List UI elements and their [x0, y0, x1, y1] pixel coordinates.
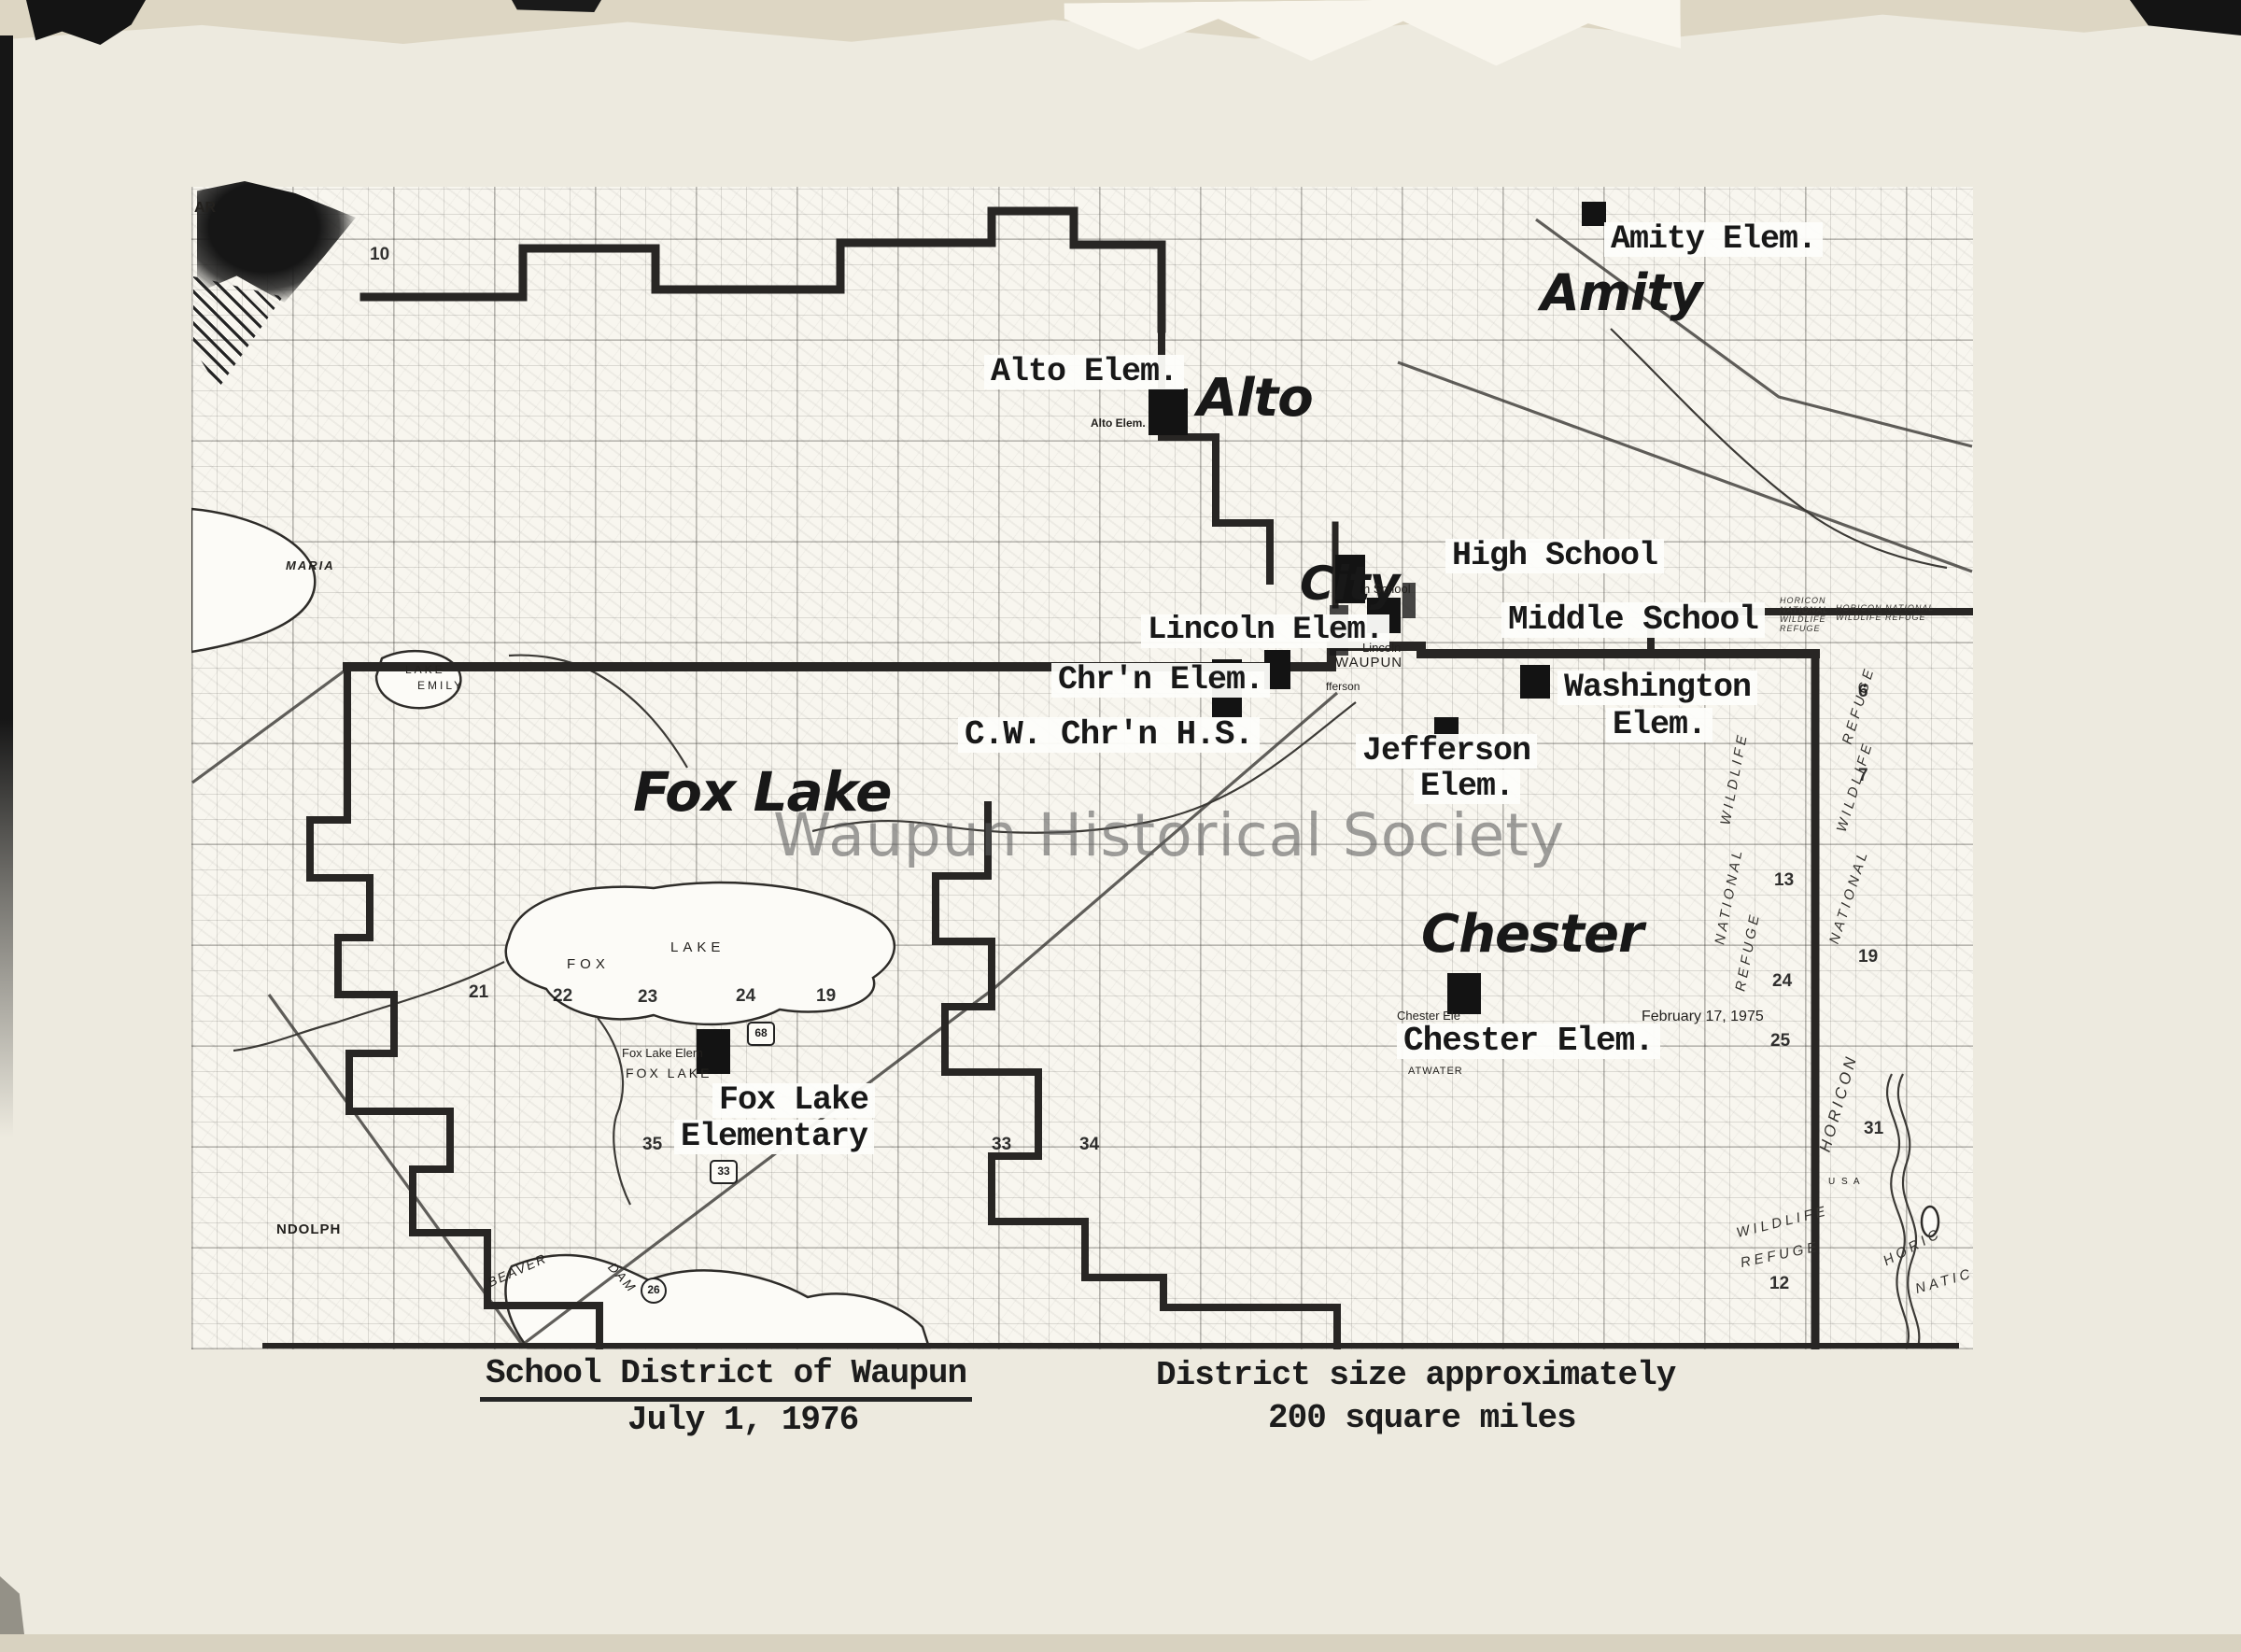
label-middle-school: Middle School — [1501, 602, 1765, 638]
map-text-atwater: ATWATER — [1408, 1066, 1463, 1077]
beaver-dam-lake — [506, 1255, 929, 1348]
section-number: 35 — [642, 1135, 662, 1155]
town-label-amity: Amity — [1541, 263, 1702, 322]
section-number: 10 — [370, 245, 389, 265]
map-text-usa: U S A — [1828, 1177, 1862, 1187]
refuge-block-line: HORICON — [1780, 596, 1828, 605]
map-text-ar: AR — [194, 200, 216, 217]
scan-corner-mark — [26, 0, 146, 45]
refuge-block-line: WILDLIFE REFUGE — [1836, 613, 1934, 622]
section-number: 7 — [1858, 766, 1868, 786]
school-marker-alto — [1149, 388, 1188, 435]
label-washington-elem-line1: Washington — [1557, 671, 1757, 705]
label-washington-elem-line2: Elem. — [1606, 708, 1712, 742]
section-number: 31 — [1864, 1119, 1883, 1139]
label-alto-elem: Alto Elem. — [984, 355, 1184, 389]
section-number: 6 — [1858, 682, 1868, 702]
section-number: 25 — [1770, 1031, 1790, 1052]
section-number: 33 — [992, 1135, 1011, 1155]
town-label-alto: Alto — [1197, 368, 1313, 429]
label-fox-lake-elementary-line2: Elementary — [674, 1120, 874, 1154]
map-text-fox-lake-caps: FOX LAKE — [626, 1066, 712, 1080]
school-marker-amity — [1582, 202, 1606, 226]
refuge-block-line: REFUGE — [1780, 624, 1828, 633]
page-bottom-edge — [0, 1634, 2241, 1652]
section-number: 24 — [736, 986, 755, 1007]
section-number: 19 — [1858, 947, 1878, 967]
label-jefferson-elem-line2: Elem. — [1414, 770, 1520, 804]
map-text-lake-emily-1: LAKE — [405, 663, 445, 676]
map-text-lake: LAKE — [670, 939, 725, 955]
section-number: 23 — [638, 987, 657, 1008]
map-text-alto-elem-small: Alto Elem. — [1091, 417, 1146, 430]
label-fox-lake-elementary-line1: Fox Lake — [712, 1083, 875, 1118]
caption-date: July 1, 1976 — [627, 1401, 858, 1439]
section-number: 21 — [469, 982, 488, 1003]
label-chester-elem: Chester Elem. — [1397, 1024, 1660, 1059]
town-label-chester: Chester — [1421, 904, 1643, 965]
refuge-block-2: HORICON NATIONAL WILDLIFE REFUGE — [1836, 603, 1934, 622]
map-text-date-note: February 17, 1975 — [1642, 1009, 1764, 1025]
map-text-lake-emily-2: EMILY — [417, 679, 464, 692]
label-jefferson-elem-line1: Jefferson — [1356, 734, 1537, 769]
map-text-jefferson-small: fferson — [1326, 680, 1360, 693]
section-number: 22 — [553, 986, 572, 1007]
map-text-h-school: h School — [1363, 582, 1411, 596]
label-cw-chrn-hs: C.W. Chr'n H.S. — [958, 717, 1260, 753]
label-high-school: High School — [1445, 539, 1664, 573]
map-text-chester-small: Chester Ele — [1397, 1009, 1460, 1023]
map-text-fox-lake-elem-small: Fox Lake Elem — [622, 1046, 703, 1060]
refuge-block-line: NATIONAL — [1780, 605, 1828, 614]
scan-edge-mark — [0, 35, 13, 1137]
map-text-waupun: WAUPUN — [1335, 655, 1402, 671]
section-number: 19 — [816, 986, 836, 1007]
lake-maria — [191, 509, 315, 652]
scanned-page: Amity Elem. Alto Elem. High School Middl… — [0, 0, 2241, 1652]
map-text-randolph: NDOLPH — [276, 1221, 341, 1237]
watermark: Waupun Historical Society — [773, 801, 1565, 869]
label-lincoln-elem: Lincoln Elem. — [1141, 614, 1389, 648]
section-number: 13 — [1774, 870, 1794, 891]
scan-corner-mark — [0, 1576, 24, 1634]
highway-shield-26: 26 — [641, 1278, 667, 1304]
section-number: 34 — [1079, 1135, 1099, 1155]
label-amity-elem: Amity Elem. — [1604, 222, 1823, 257]
section-number: 12 — [1769, 1274, 1789, 1294]
map-text-maria: MARIA — [286, 558, 335, 572]
caption-size-line1: District size approximately — [1156, 1356, 1675, 1394]
school-marker-washington — [1520, 665, 1550, 699]
map-text-fox: FOX — [567, 956, 610, 972]
section-number: 24 — [1772, 971, 1792, 992]
refuge-block-line: HORICON NATIONAL — [1836, 603, 1934, 613]
refuge-block-1: HORICON NATIONAL WILDLIFE REFUGE — [1780, 596, 1828, 633]
highway-shield-68: 68 — [747, 1022, 775, 1046]
torn-paper-highlight — [1064, 0, 1682, 89]
label-chrn-elem: Chr'n Elem. — [1051, 663, 1270, 698]
caption-size-line2: 200 square miles — [1268, 1399, 1576, 1437]
refuge-block-line: WILDLIFE — [1780, 614, 1828, 624]
caption-title: School District of Waupun — [480, 1354, 972, 1402]
highway-shield-33: 33 — [710, 1160, 738, 1184]
map-text-lincoln: Lincoln — [1362, 641, 1401, 655]
